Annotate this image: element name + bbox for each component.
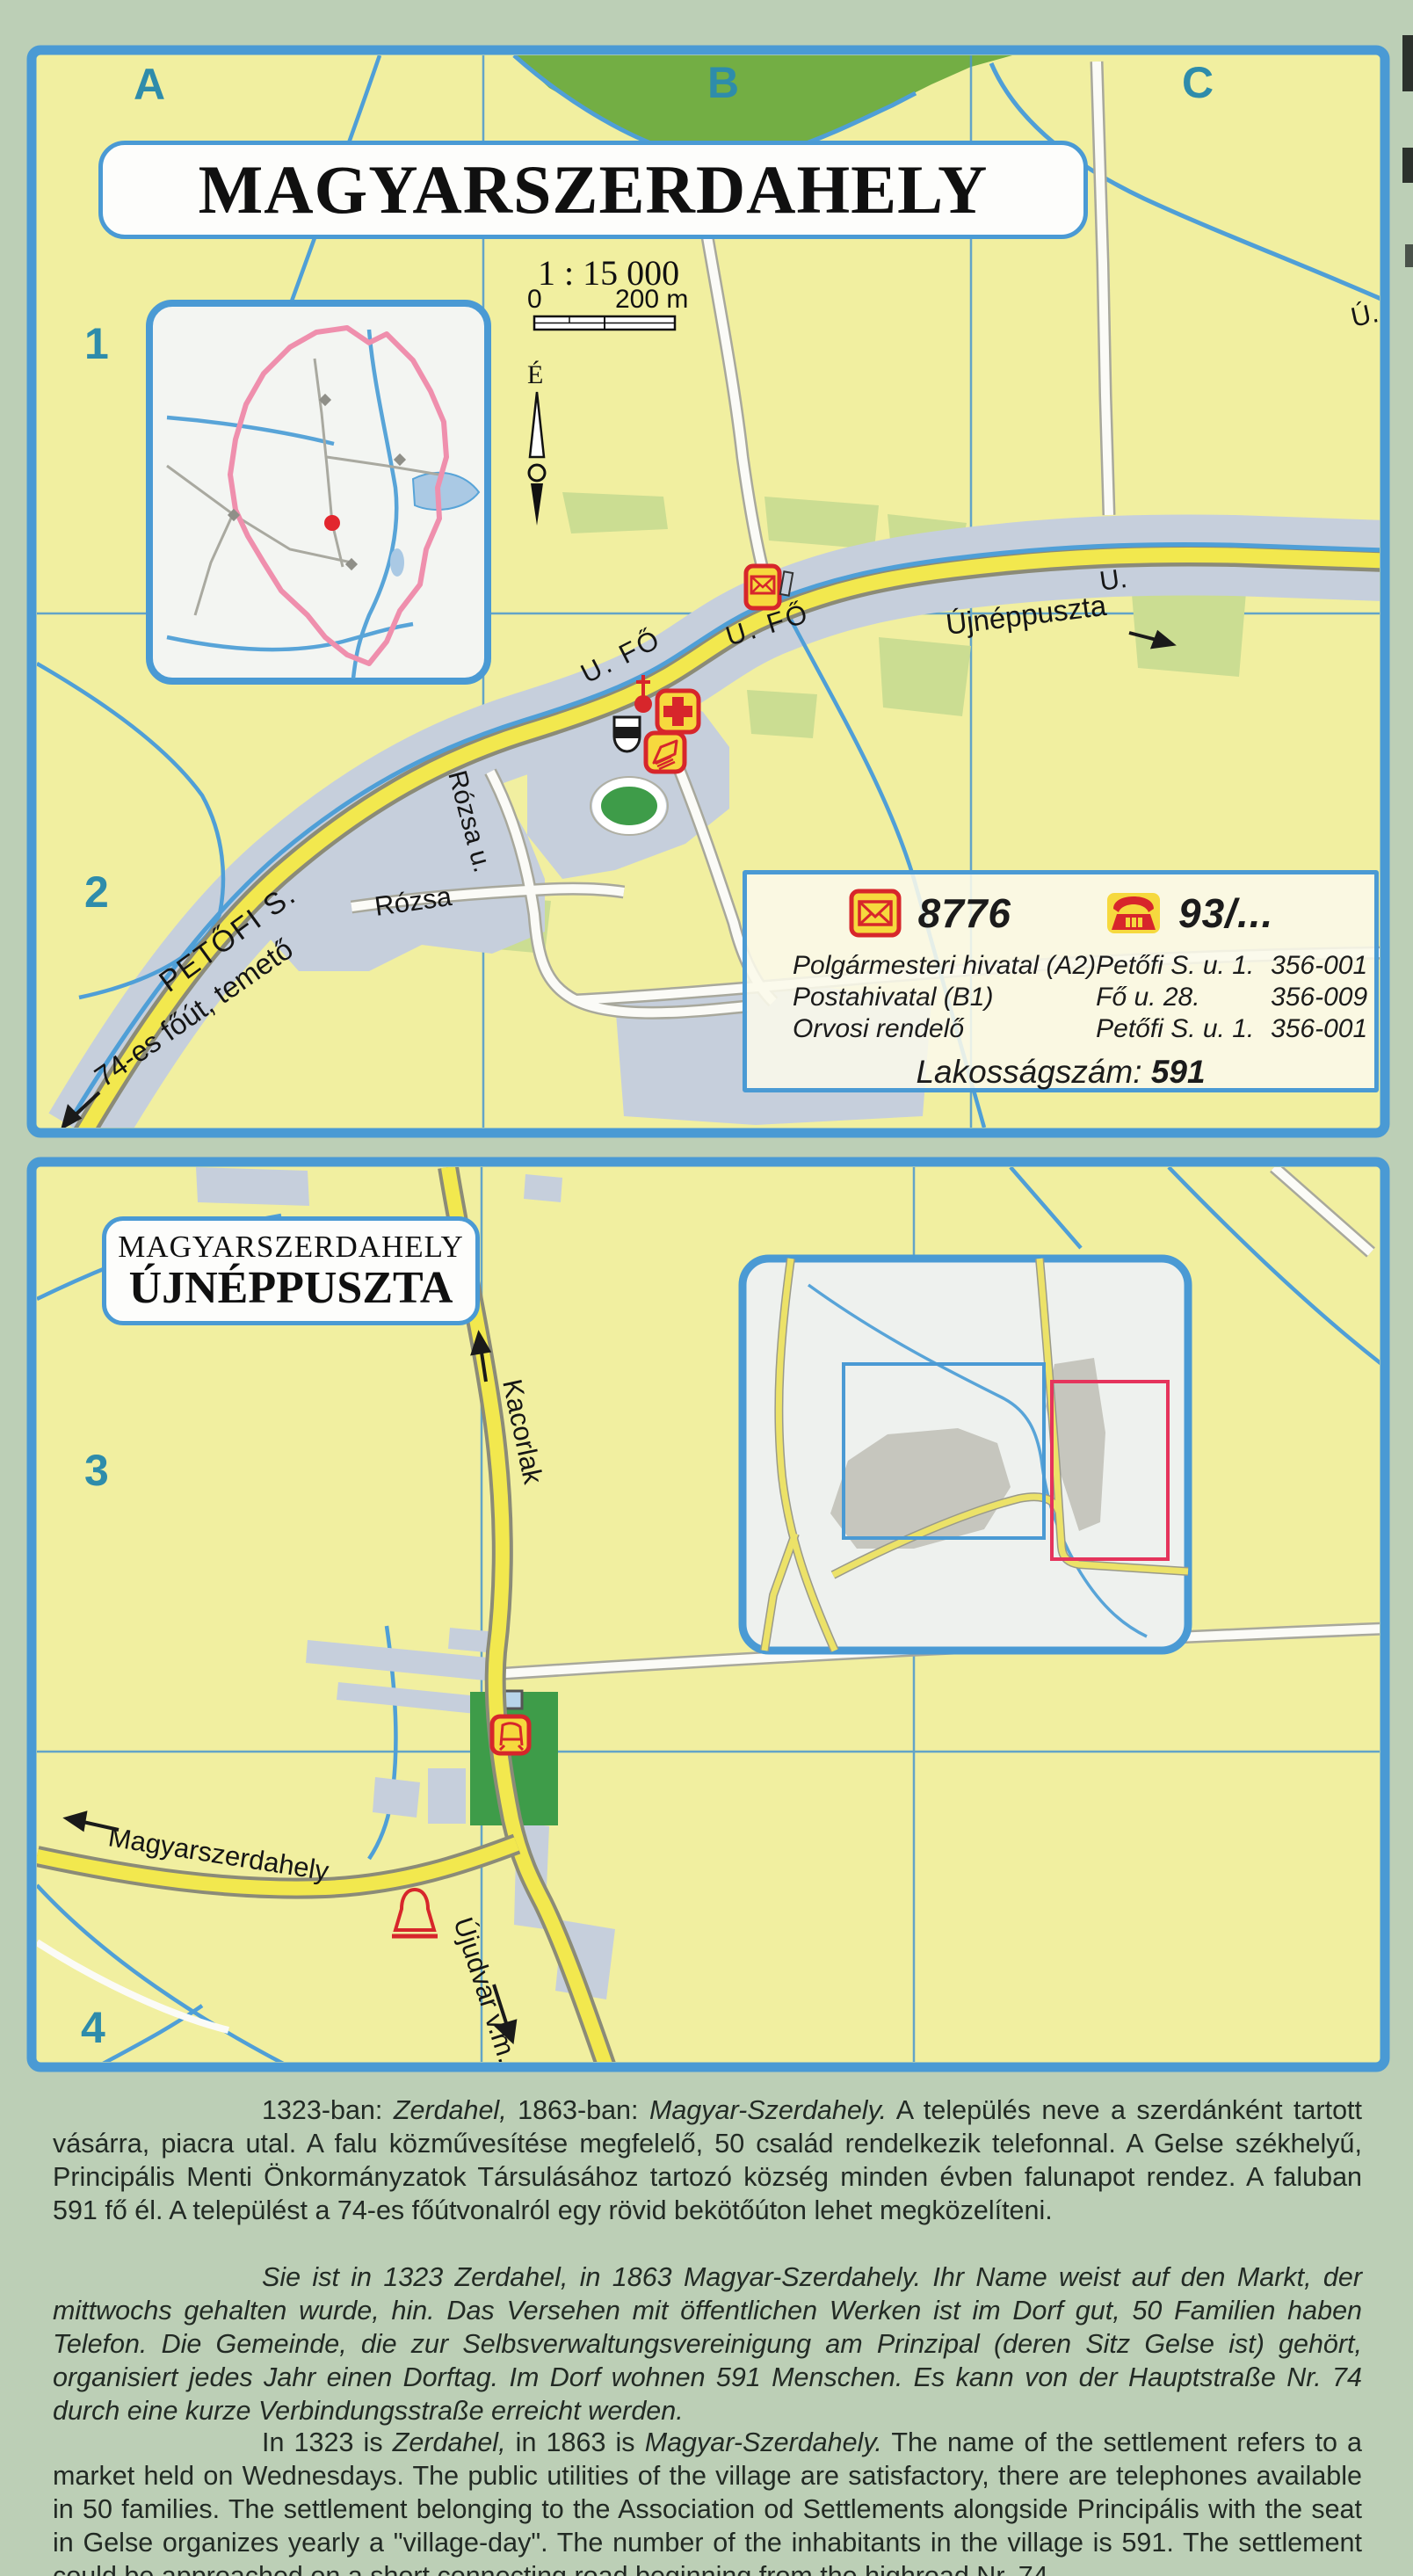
paragraph-text: 1323-ban: xyxy=(262,2095,394,2125)
info-name: Orvosi rendelő xyxy=(793,1013,1096,1045)
inset-village-dot xyxy=(324,515,340,531)
paragraph-text: Magyar-Szerdahely. xyxy=(645,2427,882,2457)
scale-zero: 0 xyxy=(527,285,542,314)
grid-row-3: 3 xyxy=(84,1446,109,1495)
grid-row-2: 2 xyxy=(84,867,109,917)
sports-field xyxy=(591,777,668,835)
paragraph-text: Magyar-Szerdahely. xyxy=(649,2095,887,2125)
scale-bar xyxy=(534,316,675,330)
postal-code: 8776 xyxy=(918,889,1011,937)
grid-row-1: 1 xyxy=(84,319,109,368)
grid-row-4: 4 xyxy=(81,2003,105,2052)
postal-envelope-icon xyxy=(848,889,902,938)
inset-pond xyxy=(390,548,404,577)
paragraph-text: 1863-ban: xyxy=(507,2095,649,2125)
paragraph-text: Zerdahel, xyxy=(393,2427,506,2457)
paragraph-text: in 1863 is xyxy=(506,2427,645,2457)
scale-max: 200 m xyxy=(615,285,688,314)
population-label: Lakosságszám: xyxy=(916,1054,1141,1090)
paragraph-hungarian: 1323-ban: Zerdahel, 1863-ban: Magyar-Sze… xyxy=(53,2093,1362,2227)
info-row: Orvosi rendelő Petőfi S. u. 1. 356-001 xyxy=(793,1013,1374,1045)
atlas-page: U. FŐ U. FŐ U. Ú. Újnéppuszta PETŐFI S. … xyxy=(0,0,1413,2576)
info-phone: 356-009 xyxy=(1271,982,1374,1013)
map-title-box: MAGYARSZERDAHELY xyxy=(98,141,1088,239)
info-phone: 356-001 xyxy=(1271,1013,1374,1045)
info-row: Postahivatal (B1) Fő u. 28. 356-009 xyxy=(793,982,1374,1013)
info-phone: 356-001 xyxy=(1271,950,1374,982)
info-address: Fő u. 28. xyxy=(1096,982,1271,1013)
paragraph-text: In 1323 is xyxy=(262,2427,393,2457)
info-name: Postahivatal (B1) xyxy=(793,982,1096,1013)
landmark-icon xyxy=(492,1716,529,1753)
paragraph-text: Zerdahel, xyxy=(394,2095,507,2125)
paragraph-english: In 1323 is Zerdahel, in 1863 is Magyar-S… xyxy=(53,2426,1362,2576)
paragraph-german: Sie ist in 1323 Zerdahel, in 1863 Magyar… xyxy=(53,2260,1362,2427)
paragraph-text: Sie ist in 1323 Zerdahel, in 1863 Magyar… xyxy=(53,2262,1362,2426)
population-line: Lakosságszám: 591 xyxy=(747,1054,1374,1091)
map2-title-line2: ÚJNÉPPUSZTA xyxy=(129,1265,453,1313)
telephone-icon xyxy=(1105,889,1163,937)
locator-inset-map xyxy=(149,303,488,681)
map2-title-line1: MAGYARSZERDAHELY xyxy=(118,1230,464,1265)
map2-title-box: MAGYARSZERDAHELY ÚJNÉPPUSZTA xyxy=(102,1216,480,1325)
map-title: MAGYARSZERDAHELY xyxy=(199,156,989,224)
info-box-header: 8776 93/... xyxy=(747,889,1374,938)
sheet-extent-inset-map xyxy=(743,1259,1188,1651)
info-name: Polgármesteri hivatal (A2) xyxy=(793,950,1096,982)
grid-col-c: C xyxy=(1182,58,1214,107)
library-book-icon xyxy=(646,733,685,772)
medical-cross-icon xyxy=(657,691,699,732)
scale-block: 1 : 15 000 0 200 m xyxy=(527,253,688,330)
info-address: Petőfi S. u. 1. xyxy=(1096,950,1271,982)
north-label: É xyxy=(527,360,543,389)
info-box: 8776 93/... Polgármesteri hivatal (A2) P… xyxy=(743,870,1379,1092)
info-row: Polgármesteri hivatal (A2) Petőfi S. u. … xyxy=(793,950,1374,982)
population-value: 591 xyxy=(1151,1054,1206,1090)
grid-col-a: A xyxy=(134,60,165,109)
phone-prefix: 93/... xyxy=(1178,889,1273,937)
town-hall-shield-icon xyxy=(614,717,640,751)
info-address: Petőfi S. u. 1. xyxy=(1096,1013,1271,1045)
info-table: Polgármesteri hivatal (A2) Petőfi S. u. … xyxy=(793,950,1374,1045)
grid-col-b: B xyxy=(707,58,739,107)
